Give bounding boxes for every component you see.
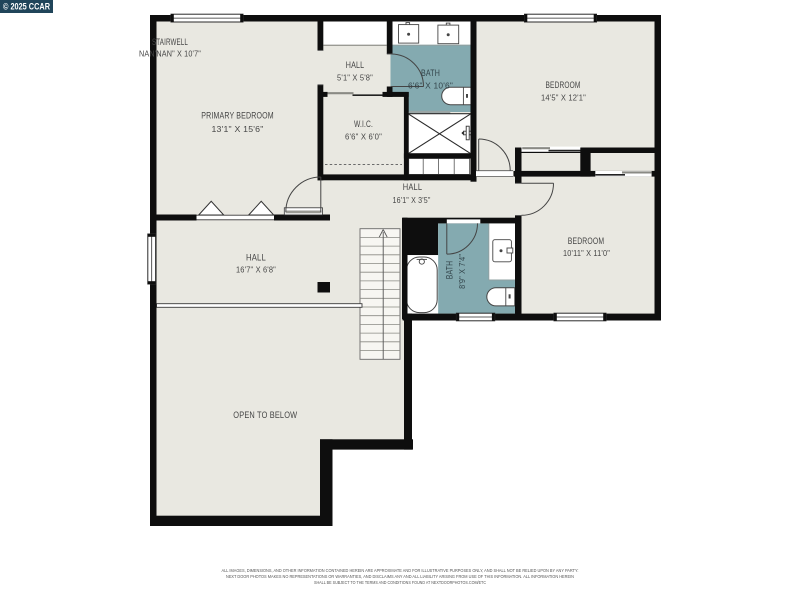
svg-text:14'5" X 12'1": 14'5" X 12'1"	[541, 93, 586, 103]
svg-text:© 2025 CCAR: © 2025 CCAR	[3, 2, 50, 12]
svg-text:SHALL BE SUBJECT TO THE TERMS: SHALL BE SUBJECT TO THE TERMS AND CONDIT…	[314, 580, 487, 585]
svg-text:ALL IMAGES, DIMENSIONS, AND OT: ALL IMAGES, DIMENSIONS, AND OTHER INFORM…	[222, 568, 579, 573]
svg-text:NAN'NAN" X 10'7": NAN'NAN" X 10'7"	[139, 49, 201, 59]
svg-text:W.I.C.: W.I.C.	[354, 119, 373, 129]
svg-text:OPEN TO BELOW: OPEN TO BELOW	[233, 410, 297, 420]
svg-text:BATH: BATH	[445, 261, 455, 280]
svg-text:13'1" X 15'6": 13'1" X 15'6"	[212, 124, 264, 134]
svg-text:6'6" X 6'0": 6'6" X 6'0"	[345, 132, 382, 142]
svg-text:HALL: HALL	[403, 182, 423, 192]
svg-text:BATH: BATH	[421, 68, 440, 78]
svg-text:10'11" X 11'0": 10'11" X 11'0"	[563, 248, 610, 258]
svg-text:6'6" X 10'6": 6'6" X 10'6"	[408, 81, 453, 91]
svg-text:STAIRWELL: STAIRWELL	[152, 37, 188, 47]
svg-text:HALL: HALL	[246, 253, 266, 263]
svg-text:HALL: HALL	[346, 60, 365, 70]
svg-text:BEDROOM: BEDROOM	[546, 80, 581, 90]
svg-text:BEDROOM: BEDROOM	[568, 236, 605, 246]
svg-text:PRIMARY BEDROOM: PRIMARY BEDROOM	[201, 111, 274, 121]
svg-text:8'9" X 7'4": 8'9" X 7'4"	[457, 254, 467, 289]
svg-text:16'7" X 6'8": 16'7" X 6'8"	[236, 265, 276, 275]
svg-text:NEXT DOOR PHOTOS MAKES NO REPR: NEXT DOOR PHOTOS MAKES NO REPRESENTATION…	[226, 574, 574, 579]
svg-text:16'1" X 3'5": 16'1" X 3'5"	[393, 195, 431, 205]
svg-text:5'1" X 5'8": 5'1" X 5'8"	[337, 73, 373, 83]
